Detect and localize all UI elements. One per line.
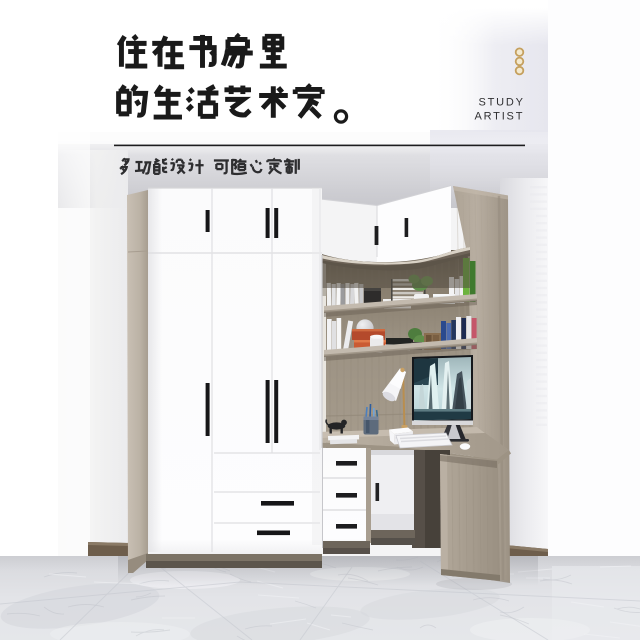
- svg-text:ARTIST: ARTIST: [475, 111, 525, 123]
- svg-text:STUDY: STUDY: [479, 97, 525, 109]
